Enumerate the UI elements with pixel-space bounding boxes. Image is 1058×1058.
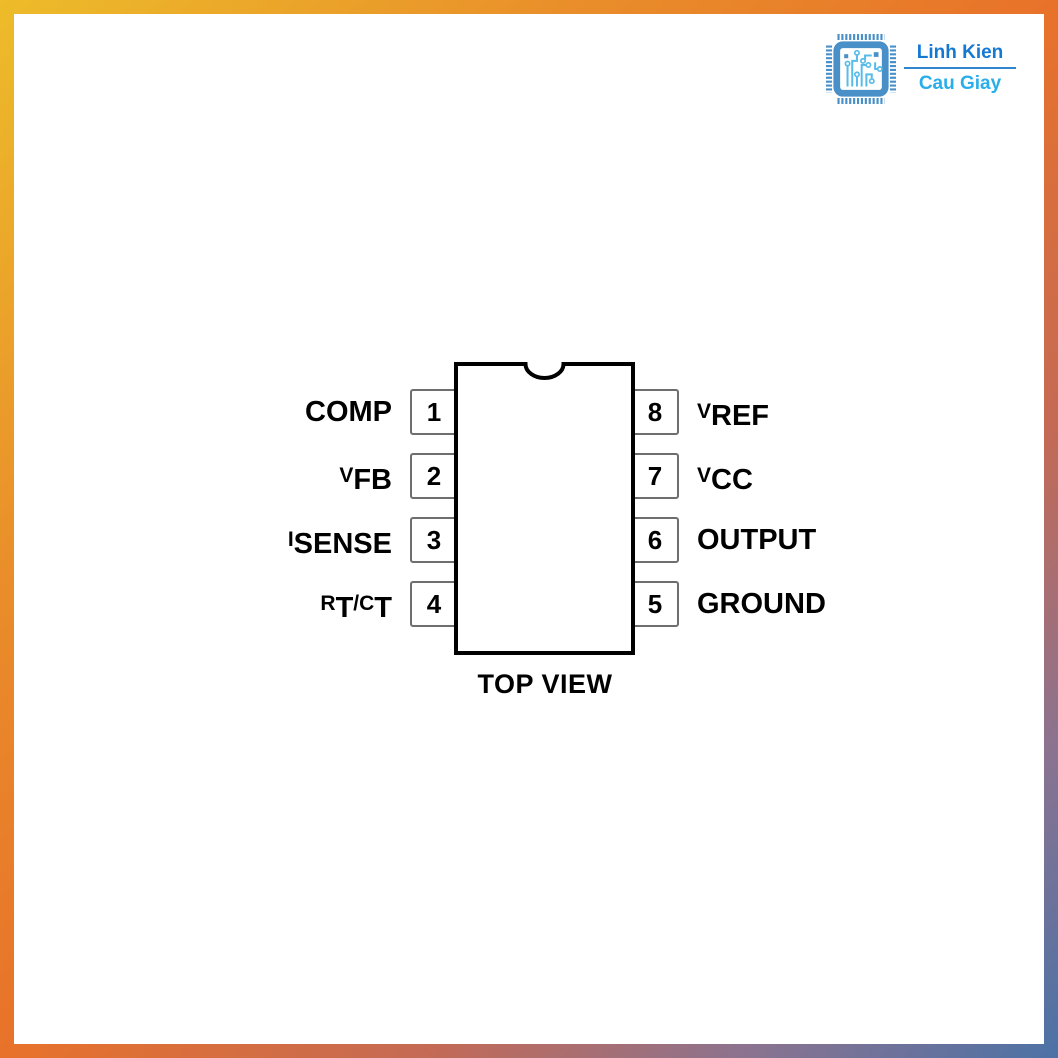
pin-number-4: 4 xyxy=(412,583,456,625)
pin-label-vref: VREF xyxy=(697,389,947,435)
pin-label-isense: ISENSE xyxy=(152,517,392,563)
pin-number-8: 8 xyxy=(633,391,677,433)
pin-label-subscript: FB xyxy=(353,464,392,496)
pin-label-output: OUTPUT xyxy=(697,517,947,563)
pin-number-6: 6 xyxy=(633,519,677,561)
logo-divider xyxy=(904,67,1016,69)
pin-box-2: 2 xyxy=(410,453,458,499)
pin-label-vcc: VCC xyxy=(697,453,947,499)
chip-icon xyxy=(826,33,896,105)
pin-label-subscript: CC xyxy=(711,464,753,496)
pin-label-text: /C xyxy=(353,592,374,615)
pin-label-text: GROUND xyxy=(697,588,826,620)
brand-name-line2: Cau Giay xyxy=(904,71,1016,97)
pin-label-subscript: T xyxy=(374,592,392,624)
pin-box-3: 3 xyxy=(410,517,458,563)
pin-number-7: 7 xyxy=(633,455,677,497)
pin-number-5: 5 xyxy=(633,583,677,625)
pin-label-ground: GROUND xyxy=(697,581,947,627)
gradient-border-frame: Linh Kien Cau Giay 1 2 3 4 8 7 6 5 COMP … xyxy=(0,0,1058,1058)
pin-box-7: 7 xyxy=(631,453,679,499)
brand-name: Linh Kien Cau Giay xyxy=(904,40,1016,97)
pin-box-8: 8 xyxy=(631,389,679,435)
pin-label-rtct: RT/CT xyxy=(152,581,392,627)
diagram-caption: TOP VIEW xyxy=(454,669,636,700)
pin-number-3: 3 xyxy=(412,519,456,561)
ic-package-body xyxy=(454,362,636,656)
pin-label-text: V xyxy=(697,464,711,487)
pin-box-1: 1 xyxy=(410,389,458,435)
brand-name-line1: Linh Kien xyxy=(904,40,1016,66)
pin-label-subscript: REF xyxy=(711,400,769,432)
pin-box-6: 6 xyxy=(631,517,679,563)
pin-box-5: 5 xyxy=(631,581,679,627)
pin-label-vfb: VFB xyxy=(152,453,392,499)
pin-label-text: R xyxy=(320,592,335,615)
pin-label-text: OUTPUT xyxy=(697,524,816,556)
pin-label-comp: COMP xyxy=(152,389,392,435)
pin-number-2: 2 xyxy=(412,455,456,497)
pin-label-text: COMP xyxy=(305,396,392,428)
pin-label-subscript: T xyxy=(336,592,354,624)
pin-label-text: V xyxy=(697,400,711,423)
pin-label-text: V xyxy=(339,464,353,487)
pin-box-4: 4 xyxy=(410,581,458,627)
pin-number-1: 1 xyxy=(412,391,456,433)
pin-label-subscript: SENSE xyxy=(294,528,392,560)
